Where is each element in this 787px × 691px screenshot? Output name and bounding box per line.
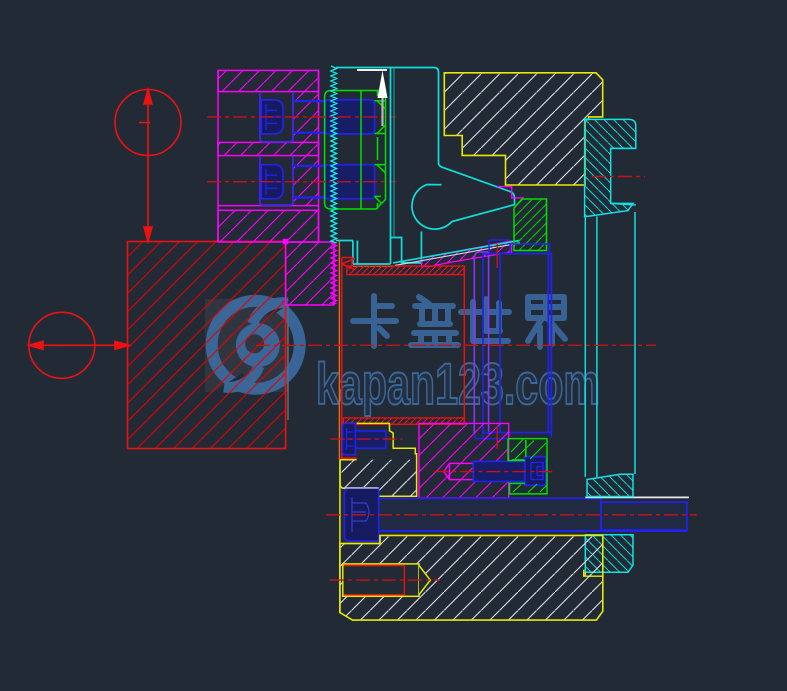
svg-text:kapan123.com: kapan123.com xyxy=(316,352,600,417)
